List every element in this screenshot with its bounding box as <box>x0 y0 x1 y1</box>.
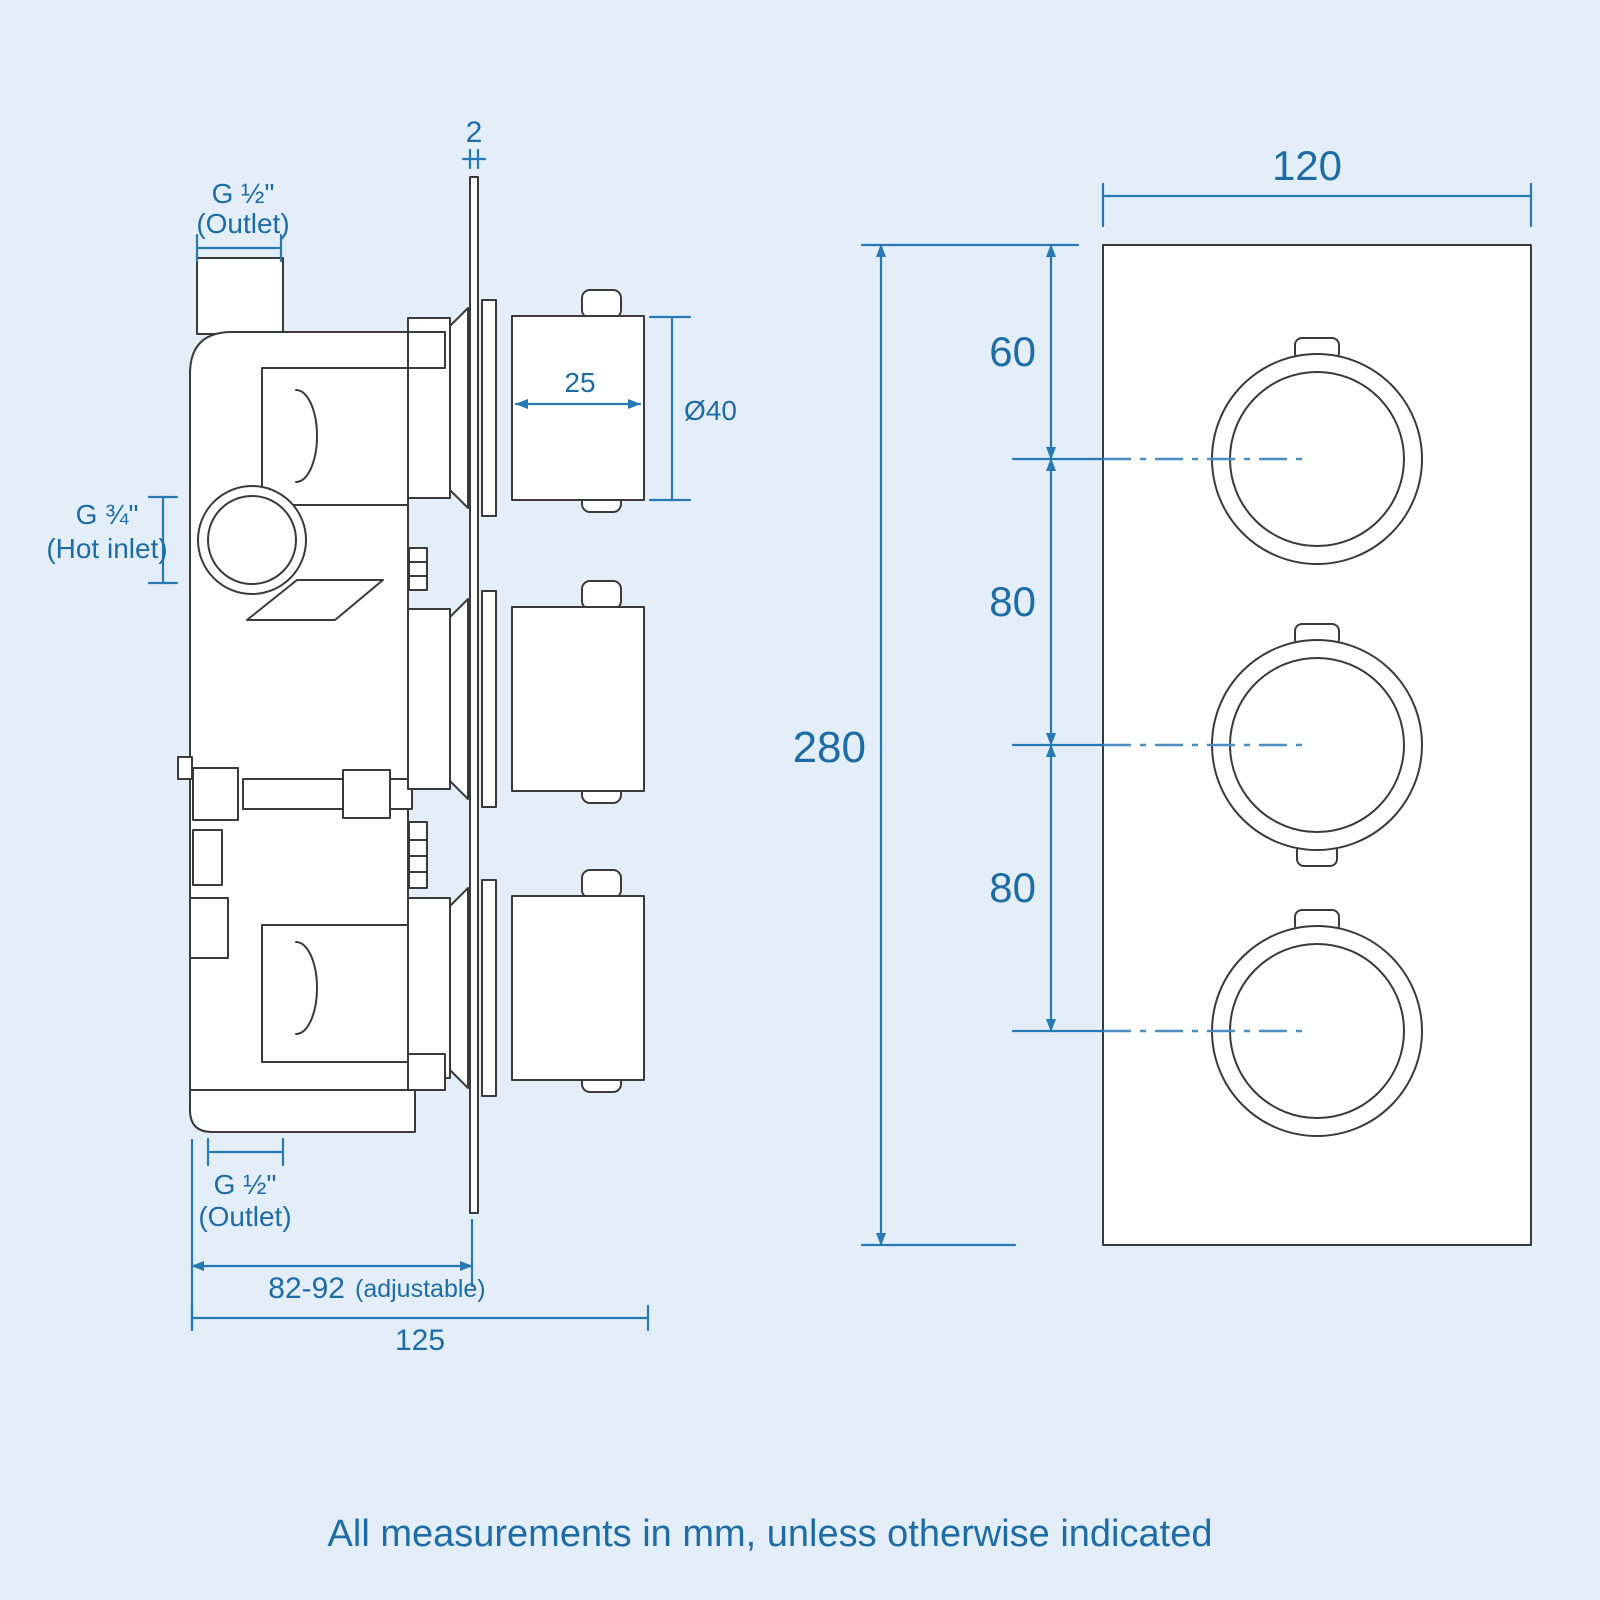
dim-label-hot-inlet-size: G ¾" <box>76 499 139 530</box>
dim-label-mid-spacing: 80 <box>989 578 1036 625</box>
escutcheon-edge <box>482 591 496 807</box>
knob-top-tab <box>582 581 621 609</box>
union-nut <box>343 770 390 818</box>
body-fitting-upper <box>193 768 238 820</box>
knob-outer-ring <box>1212 926 1422 1136</box>
dim-label-top-outlet-name: (Outlet) <box>196 208 289 239</box>
top-outlet-stub <box>197 258 283 334</box>
knob-side <box>512 607 644 791</box>
hot-inlet-port-inner <box>208 496 296 584</box>
knob-outer-ring <box>1212 640 1422 850</box>
dim-label-knob-diameter: Ø40 <box>684 395 737 426</box>
dim-label-top-spacing: 60 <box>989 328 1036 375</box>
dim-label-overall-depth: 125 <box>395 1324 445 1357</box>
knob-outer-ring <box>1212 354 1422 564</box>
dim-label-bottom-outlet-size: G ½" <box>214 1169 277 1200</box>
dim-label-plate-thickness: 2 <box>466 116 483 149</box>
cold-inlet-stub <box>178 757 192 779</box>
body-fitting-lower <box>193 830 222 885</box>
cartridge-row-middle <box>408 581 644 807</box>
knob-top-tab <box>582 870 621 898</box>
dim-label-bottom-outlet-name: (Outlet) <box>198 1201 291 1232</box>
dim-label-width: 120 <box>1272 142 1342 189</box>
dim-label-adjustable-note: (adjustable) <box>355 1275 486 1303</box>
escutcheon-edge <box>482 880 496 1096</box>
bottom-bracket-arm <box>408 1054 445 1090</box>
technical-drawing-page: 2 G ½" (Outlet) G ¾" (Hot inlet) 25 Ø40 … <box>0 0 1600 1600</box>
spindle-thread-lower <box>409 822 427 888</box>
dim-label-knob-depth: 25 <box>564 367 595 398</box>
dim-label-top-outlet-size: G ½" <box>212 178 275 209</box>
cone-flange <box>450 308 468 508</box>
dim-label-bottom-spacing: 80 <box>989 864 1036 911</box>
dim-label-adjustable-range: 82-92 <box>268 1272 345 1305</box>
dim-label-hot-inlet-name: (Hot inlet) <box>46 533 167 564</box>
cartridge-cylinder <box>408 898 450 1078</box>
cone-flange <box>450 888 468 1088</box>
shower-valve-dimension-drawing: 2 G ½" (Outlet) G ¾" (Hot inlet) 25 Ø40 … <box>0 0 1600 1600</box>
measurements-note: All measurements in mm, unless otherwise… <box>328 1513 1213 1555</box>
dim-label-height: 280 <box>793 723 866 772</box>
body-fitting-bottom <box>190 898 228 958</box>
knob-top-tab <box>582 290 621 318</box>
knob-side <box>512 896 644 1080</box>
wall-plate-edge <box>470 177 478 1213</box>
escutcheon-edge <box>482 300 496 516</box>
top-bracket-arm <box>408 332 445 368</box>
bottom-outlet-stub <box>190 1090 415 1132</box>
cartridge-cylinder <box>408 609 450 789</box>
spindle-thread-upper <box>409 548 427 590</box>
knob-side <box>512 316 644 500</box>
cone-flange <box>450 599 468 799</box>
